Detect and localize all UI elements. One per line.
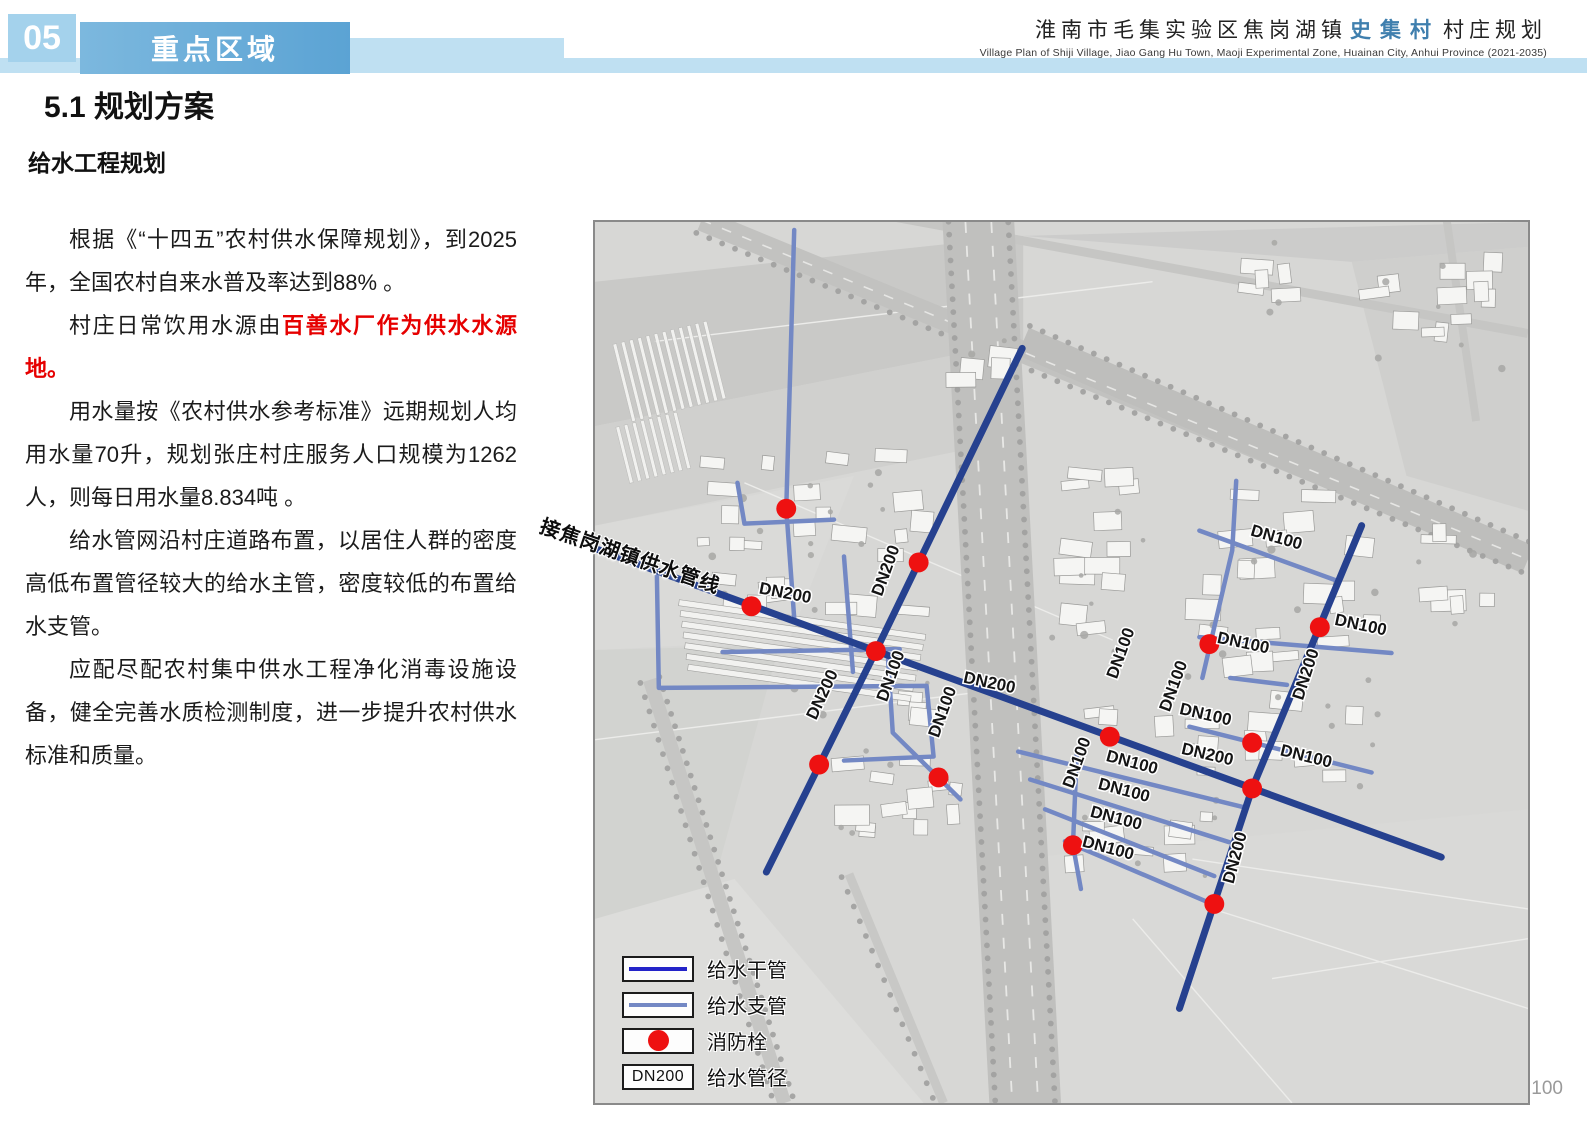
section-title: 5.1 规划方案 — [44, 82, 214, 126]
fire-hydrant-8 — [1242, 778, 1262, 798]
legend-symbol-branch — [622, 992, 694, 1018]
legend-item-hydrant: 消防栓 — [622, 1027, 787, 1054]
body-text: 根据《“十四五”农村供水保障规划》，到2025年，全国农村自来水普及率达到88%… — [25, 218, 517, 777]
map-figure: DN200DN200DN200DN200DN200DN200DN200DN100… — [593, 220, 1530, 1105]
legend-item-branch: 给水支管 — [622, 991, 787, 1018]
project-title-prefix: 淮南市毛集实验区焦岗湖镇 — [1035, 18, 1347, 42]
fire-hydrant-12 — [1310, 617, 1330, 637]
project-header: 淮南市毛集实验区焦岗湖镇史集村村庄规划 Village Plan of Shij… — [980, 14, 1547, 59]
project-title: 淮南市毛集实验区焦岗湖镇史集村村庄规划 — [980, 14, 1547, 44]
document-page: 05 重点区域 淮南市毛集实验区焦岗湖镇史集村村庄规划 Village Plan… — [0, 0, 1587, 1122]
legend-label: 给水支管 — [707, 990, 787, 1019]
subsection-title: 给水工程规划 — [28, 144, 166, 178]
legend-symbol-main — [622, 956, 694, 982]
project-title-highlight: 史集村 — [1350, 17, 1440, 42]
legend-symbol-diameter: DN200 — [622, 1064, 694, 1090]
legend-item-main: 给水干管 — [622, 955, 787, 982]
fire-hydrant-4 — [909, 552, 929, 572]
paragraph-3: 用水量按《农村供水参考标准》远期规划人均用水量70升，规划张庄村庄服务人口规模为… — [25, 390, 517, 519]
paragraph-4: 给水管网沿村庄道路布置，以居住人群的密度高低布置管径较大的给水主管，密度较低的布… — [25, 519, 517, 648]
fire-hydrant-9 — [1204, 894, 1224, 914]
legend-label: 给水干管 — [707, 954, 787, 983]
chapter-title-bar: 重点区域 — [80, 22, 350, 74]
chapter-number-badge: 05 — [8, 14, 76, 62]
legend-label: 给水管径 — [707, 1062, 787, 1091]
branch-pipe-line-icon — [629, 1003, 687, 1007]
legend-diameter-sample: DN200 — [632, 1068, 684, 1086]
paragraph-5: 应配尽配农村集中供水工程净化消毒设施设备，健全完善水质检测制度，进一步提升农村供… — [25, 648, 517, 777]
fire-hydrant-6 — [929, 768, 949, 788]
main-pipe-line-icon — [629, 967, 687, 971]
legend-label: 消防栓 — [707, 1026, 767, 1055]
fire-hydrant-10 — [1063, 835, 1083, 855]
chapter-title: 重点区域 — [151, 28, 279, 68]
legend-symbol-hydrant — [622, 1028, 694, 1054]
paragraph-2: 村庄日常饮用水源由百善水厂作为供水水源地。 — [25, 304, 517, 390]
map-legend: 给水干管给水支管消防栓DN200给水管径 — [622, 955, 787, 1099]
paragraph-1: 根据《“十四五”农村供水保障规划》，到2025年，全国农村自来水普及率达到88%… — [25, 218, 517, 304]
header-accent-strip-step — [349, 38, 564, 73]
fire-hydrant-5 — [809, 755, 829, 775]
legend-item-diameter: DN200给水管径 — [622, 1063, 787, 1090]
project-subtitle: Village Plan of Shiji Village, Jiao Gang… — [980, 47, 1547, 59]
fire-hydrant-7 — [1100, 727, 1120, 747]
fire-hydrant-2 — [741, 596, 761, 616]
project-title-suffix: 村庄规划 — [1443, 18, 1547, 42]
fire-hydrant-3 — [866, 641, 886, 661]
fire-hydrant-13 — [1242, 733, 1262, 753]
page-number: 100 — [1531, 1078, 1563, 1100]
fire-hydrant-1 — [776, 499, 796, 519]
hydrant-dot-icon — [648, 1030, 669, 1051]
